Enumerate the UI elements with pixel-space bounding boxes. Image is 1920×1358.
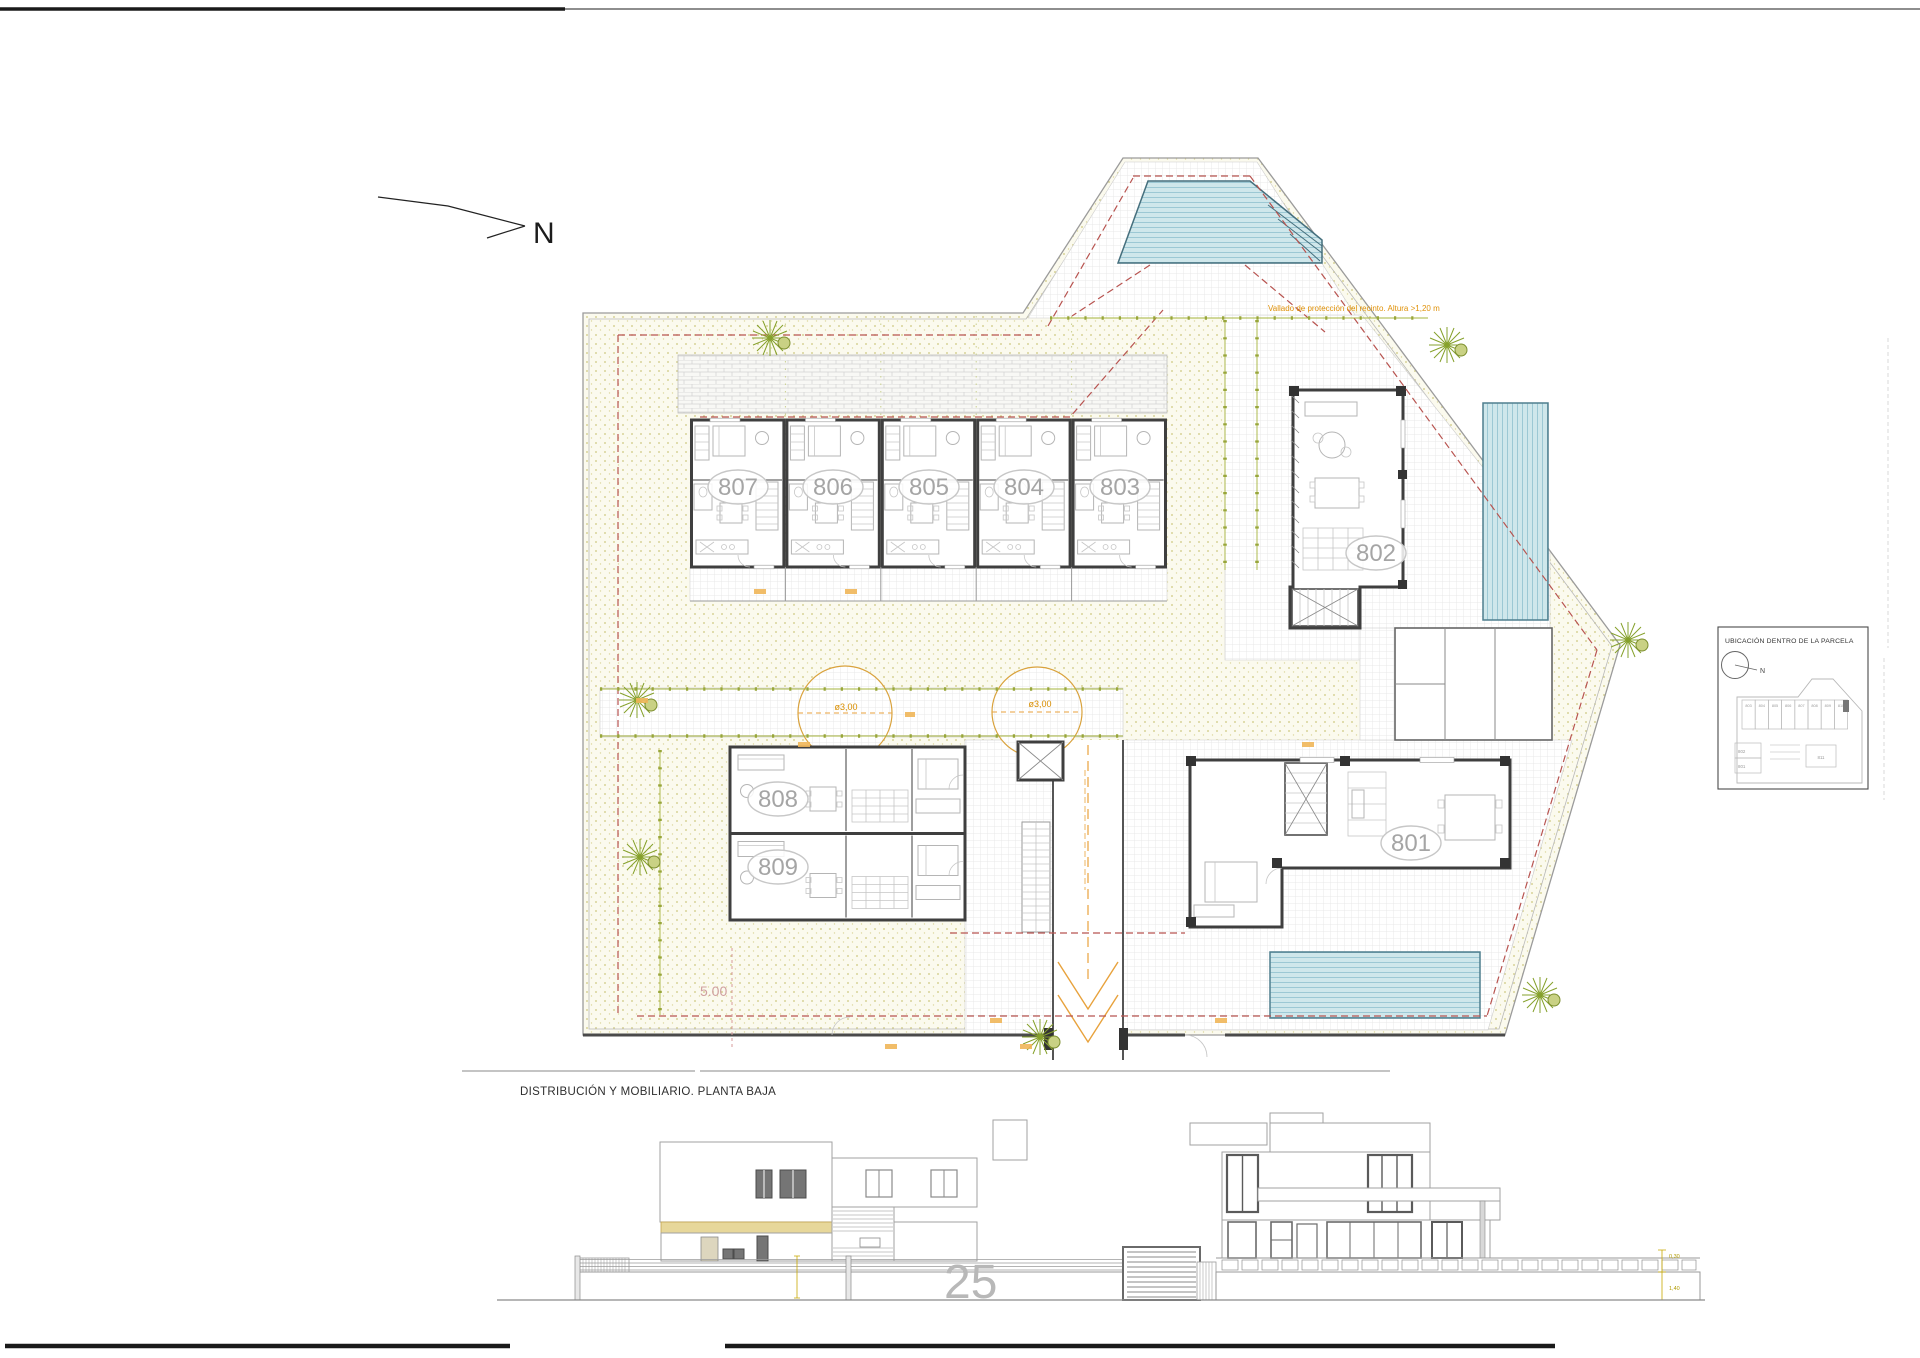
outdoor-stair bbox=[1022, 822, 1050, 932]
svg-text:805: 805 bbox=[909, 474, 949, 501]
elevation-right: 0,30 1,40 bbox=[1190, 1113, 1700, 1300]
svg-text:808: 808 bbox=[1811, 704, 1817, 708]
service-block bbox=[1395, 628, 1552, 740]
street-number: 25 bbox=[944, 1256, 997, 1309]
awning-band bbox=[661, 1222, 832, 1233]
svg-text:809: 809 bbox=[758, 854, 798, 881]
unit-label-805: 805 bbox=[899, 470, 959, 504]
fence-note: Vallado de protección del recinto. Altur… bbox=[1268, 304, 1440, 313]
unit-label-801: 801 bbox=[1381, 826, 1441, 860]
svg-text:0,30: 0,30 bbox=[1669, 1254, 1680, 1260]
unit-label-808: 808 bbox=[748, 782, 808, 816]
north-arrow: N bbox=[378, 197, 555, 250]
top-pool bbox=[1118, 181, 1322, 263]
svg-text:807: 807 bbox=[1798, 704, 1804, 708]
vehicle-gate bbox=[1123, 1247, 1216, 1300]
svg-text:806: 806 bbox=[813, 474, 853, 501]
unit-label-807: 807 bbox=[708, 470, 768, 504]
inset-802-label: 802 bbox=[1738, 749, 1746, 754]
north-label: N bbox=[533, 217, 555, 250]
inset-811-label: 811 bbox=[1818, 755, 1826, 760]
setback-dimension: 5.00 bbox=[700, 983, 727, 999]
margin-microtext-decoration bbox=[1884, 338, 1888, 800]
entry-door bbox=[701, 1237, 718, 1261]
drawing-sheet: N ø3,00 ø3,00 bbox=[0, 0, 1920, 1358]
inset-title: UBICACIÓN DENTRO DE LA PARCELA bbox=[1725, 636, 1854, 645]
unit-label-806: 806 bbox=[803, 470, 863, 504]
svg-text:1,40: 1,40 bbox=[1669, 1286, 1680, 1292]
plan-canvas: N ø3,00 ø3,00 bbox=[0, 0, 1920, 1358]
right-fence bbox=[1216, 1258, 1700, 1300]
svg-text:801: 801 bbox=[1391, 830, 1431, 857]
svg-text:802: 802 bbox=[1356, 540, 1396, 567]
svg-text:805: 805 bbox=[1772, 704, 1778, 708]
villa-802-pool bbox=[1483, 403, 1548, 620]
svg-text:803: 803 bbox=[1745, 704, 1751, 708]
plan-title: DISTRIBUCIÓN Y MOBILIARIO. PLANTA BAJA bbox=[520, 1085, 776, 1098]
circle-diameter-label: ø3,00 bbox=[1028, 699, 1051, 709]
left-fence bbox=[575, 1256, 1123, 1300]
location-inset: UBICACIÓN DENTRO DE LA PARCELA N 803804 … bbox=[1718, 627, 1868, 789]
inset-pool-mark bbox=[1843, 700, 1849, 712]
plan-title-block: DISTRIBUCIÓN Y MOBILIARIO. PLANTA BAJA bbox=[462, 1071, 1390, 1098]
inset-801-label: 801 bbox=[1738, 764, 1746, 769]
driveway-ramp bbox=[1053, 740, 1123, 1060]
svg-text:804: 804 bbox=[1004, 474, 1044, 501]
lower-houses bbox=[730, 747, 965, 920]
planter-skylight bbox=[1018, 742, 1063, 780]
villa-801-stairs bbox=[1285, 763, 1327, 835]
circle-diameter-label: ø3,00 bbox=[834, 702, 857, 712]
rear-terrace-strip bbox=[678, 355, 1167, 413]
svg-text:809: 809 bbox=[1825, 704, 1831, 708]
inset-north-label: N bbox=[1760, 668, 1765, 675]
svg-text:803: 803 bbox=[1100, 474, 1140, 501]
unit-label-803: 803 bbox=[1090, 470, 1150, 504]
unit-label-802: 802 bbox=[1346, 536, 1406, 570]
elevation-left: 25 bbox=[575, 1120, 1123, 1309]
villa-801-pool bbox=[1270, 952, 1480, 1018]
svg-text:808: 808 bbox=[758, 786, 798, 813]
svg-text:804: 804 bbox=[1759, 704, 1765, 708]
front-gardens bbox=[690, 567, 1167, 601]
unit-label-804: 804 bbox=[994, 470, 1054, 504]
unit-label-809: 809 bbox=[748, 850, 808, 884]
villa-802-stairs bbox=[1292, 589, 1358, 626]
svg-text:806: 806 bbox=[1785, 704, 1791, 708]
svg-text:807: 807 bbox=[718, 474, 758, 501]
